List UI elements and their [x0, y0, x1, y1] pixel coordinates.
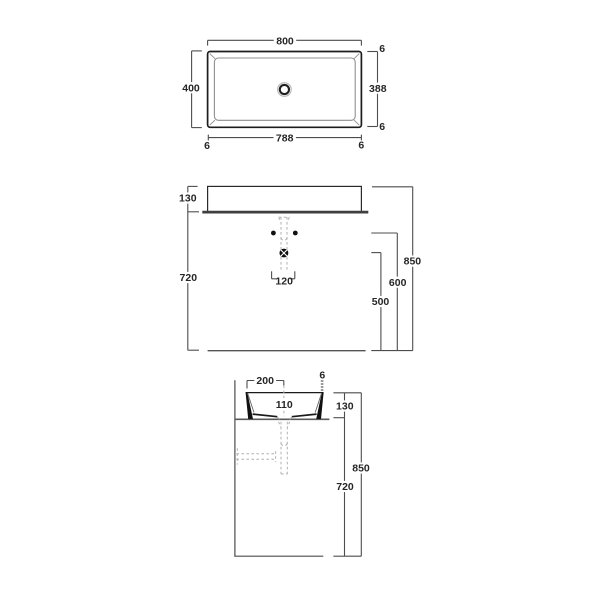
svg-text:720: 720: [336, 481, 354, 493]
svg-text:6: 6: [379, 121, 385, 133]
svg-text:6: 6: [358, 139, 364, 151]
svg-text:400: 400: [182, 82, 200, 94]
svg-text:110: 110: [276, 399, 293, 411]
svg-text:6: 6: [319, 369, 325, 381]
svg-text:850: 850: [404, 256, 422, 268]
svg-text:120: 120: [275, 275, 293, 287]
svg-text:388: 388: [369, 83, 387, 95]
svg-text:850: 850: [352, 463, 370, 475]
svg-text:500: 500: [372, 296, 390, 308]
svg-text:130: 130: [179, 193, 197, 205]
svg-text:6: 6: [379, 43, 385, 55]
svg-text:600: 600: [389, 277, 407, 289]
svg-text:200: 200: [256, 375, 274, 387]
svg-text:800: 800: [276, 35, 294, 47]
svg-text:788: 788: [276, 132, 294, 144]
svg-text:720: 720: [180, 272, 198, 284]
svg-text:130: 130: [336, 401, 354, 413]
svg-text:6: 6: [204, 140, 210, 152]
